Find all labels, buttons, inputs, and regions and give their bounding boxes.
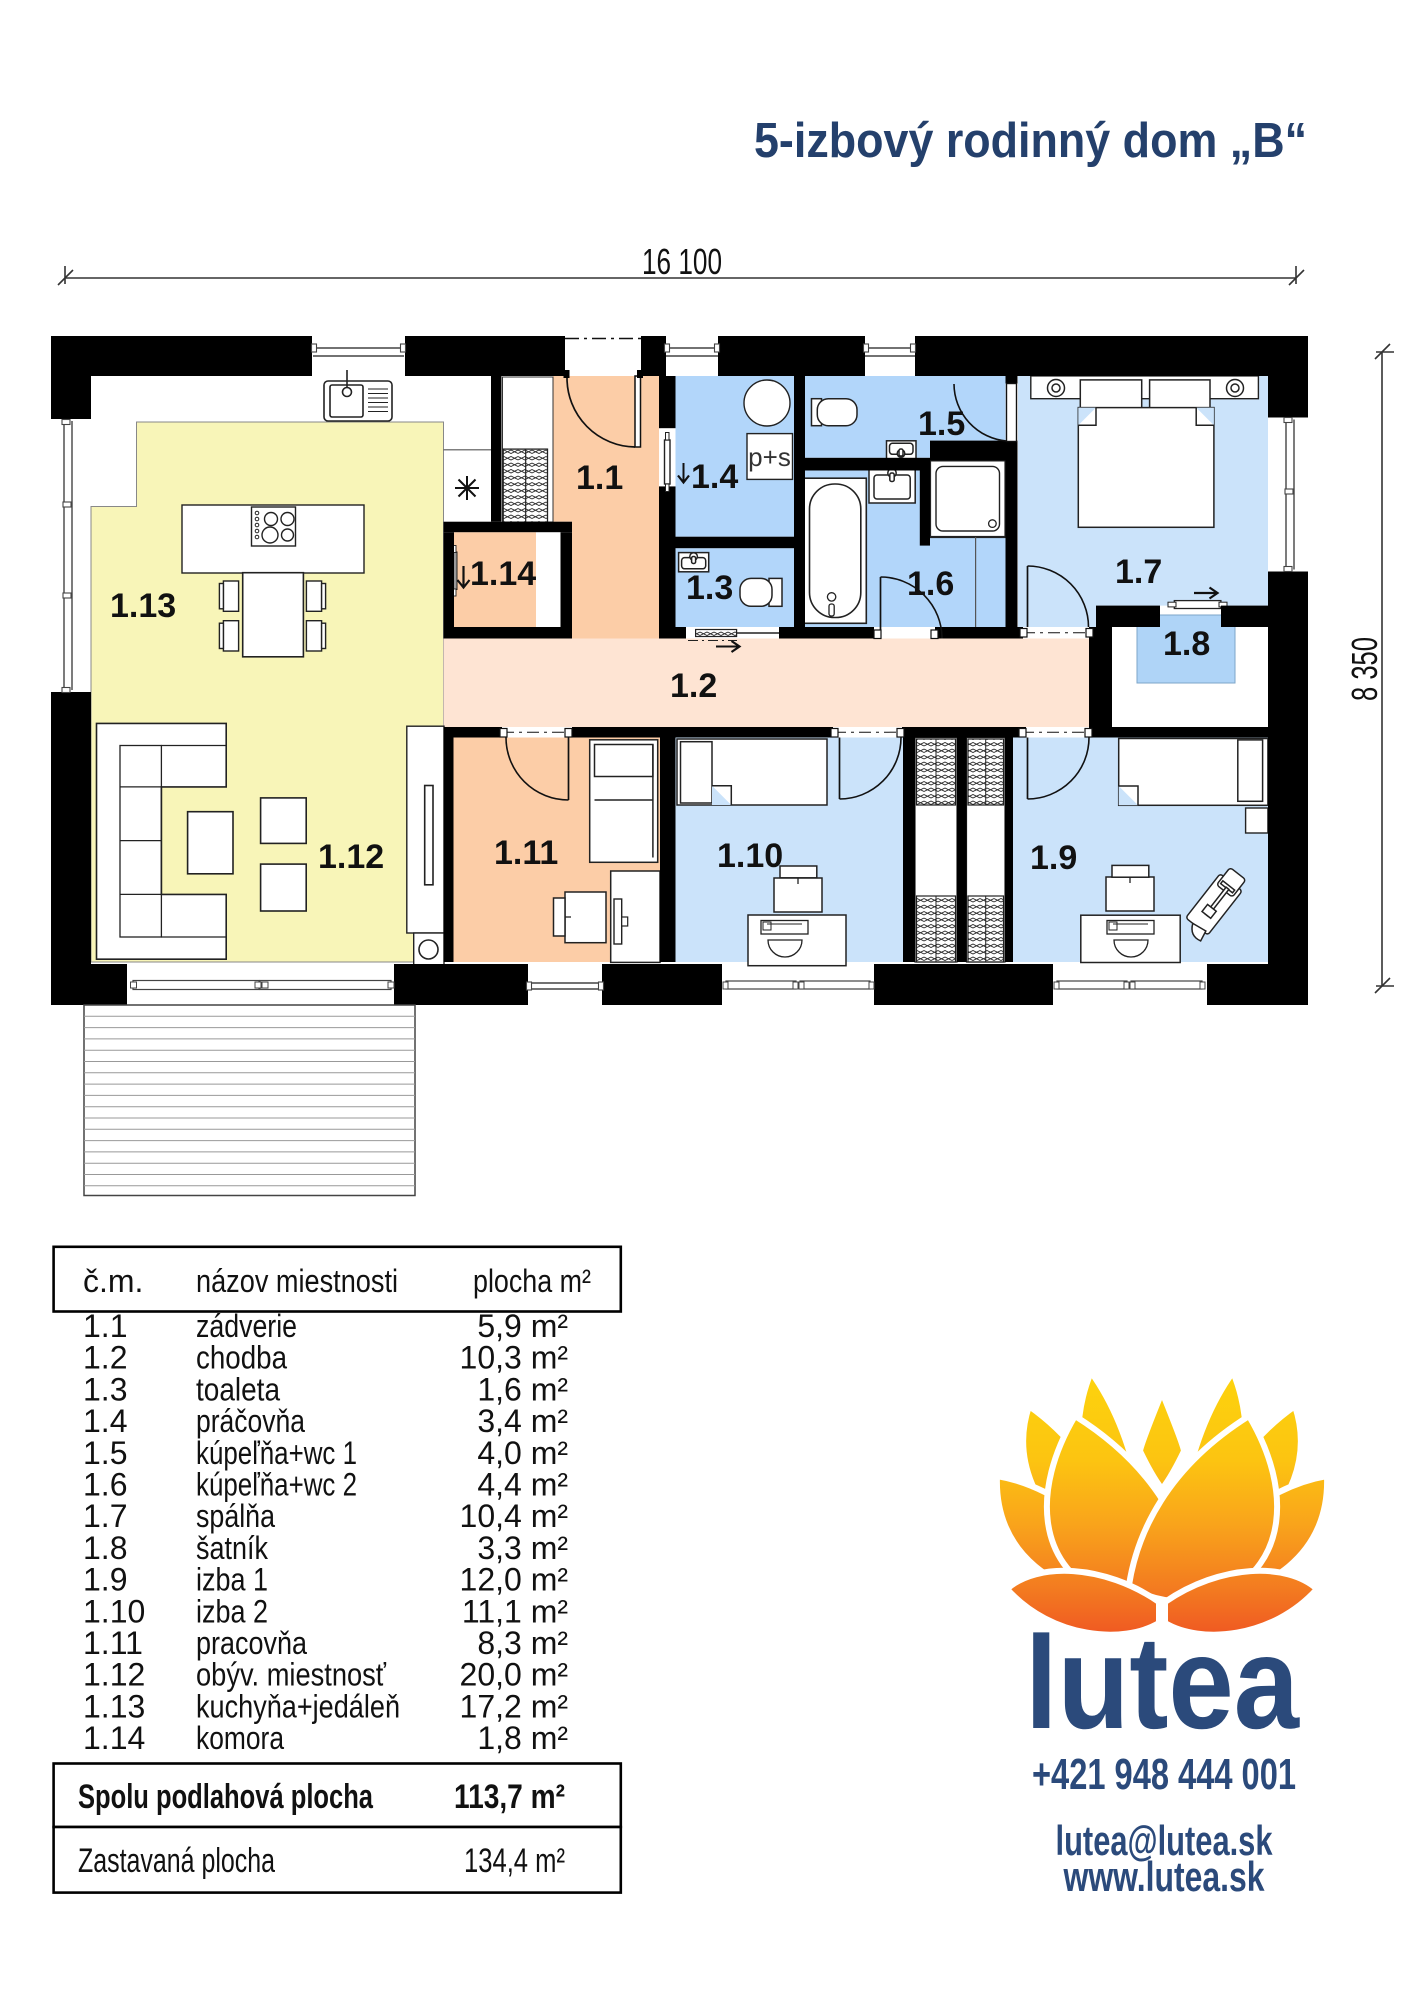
svg-text:17,2 m²: 17,2 m² (460, 1688, 569, 1724)
svg-text:1.4: 1.4 (83, 1403, 127, 1439)
svg-text:č.m.: č.m. (83, 1263, 143, 1299)
svg-text:20,0 m²: 20,0 m² (460, 1657, 569, 1693)
svg-text:pracovňa: pracovňa (196, 1625, 307, 1661)
svg-text:šatník: šatník (196, 1530, 269, 1566)
svg-text:izba 1: izba 1 (196, 1562, 268, 1598)
svg-text:1.7: 1.7 (1115, 553, 1162, 591)
svg-text:1.12: 1.12 (83, 1657, 145, 1693)
svg-text:1.13: 1.13 (110, 587, 176, 625)
svg-text:3,4 m²: 3,4 m² (477, 1403, 568, 1439)
svg-text:1.1: 1.1 (576, 459, 623, 497)
svg-text:plocha m²: plocha m² (473, 1263, 591, 1299)
svg-text:1.9: 1.9 (83, 1562, 127, 1598)
svg-text:1.14: 1.14 (83, 1720, 145, 1756)
svg-text:1.2: 1.2 (83, 1340, 127, 1376)
svg-text:3,3 m²: 3,3 m² (477, 1530, 568, 1566)
svg-text:1.11: 1.11 (494, 834, 558, 872)
svg-text:www.lutea.sk: www.lutea.sk (1063, 1853, 1265, 1900)
svg-text:1.9: 1.9 (1030, 839, 1077, 877)
svg-text:Zastavaná plocha: Zastavaná plocha (78, 1842, 275, 1880)
svg-text:4,4 m²: 4,4 m² (477, 1467, 568, 1503)
svg-text:komora: komora (196, 1720, 284, 1756)
svg-text:izba 2: izba 2 (196, 1593, 268, 1629)
svg-text:1,6 m²: 1,6 m² (477, 1371, 568, 1407)
svg-text:1,8 m²: 1,8 m² (477, 1720, 568, 1756)
svg-text:1.7: 1.7 (83, 1498, 127, 1534)
svg-text:1.11: 1.11 (83, 1625, 143, 1661)
svg-text:8,3 m²: 8,3 m² (477, 1625, 568, 1661)
svg-text:4,0 m²: 4,0 m² (477, 1435, 568, 1471)
svg-text:toaleta: toaleta (196, 1371, 280, 1407)
svg-text:1.6: 1.6 (83, 1467, 127, 1503)
svg-text:1.6: 1.6 (907, 565, 954, 603)
svg-text:kuchyňa+jedáleň: kuchyňa+jedáleň (196, 1688, 400, 1724)
svg-text:1.14: 1.14 (470, 555, 536, 593)
svg-text:1.3: 1.3 (686, 569, 733, 607)
svg-text:chodba: chodba (196, 1340, 287, 1376)
svg-text:1.8: 1.8 (83, 1530, 127, 1566)
svg-text:1.8: 1.8 (1163, 625, 1210, 663)
svg-text:zádverie: zádverie (196, 1308, 297, 1344)
svg-text:spálňa: spálňa (196, 1498, 275, 1534)
svg-text:1.12: 1.12 (318, 838, 384, 876)
svg-text:1.13: 1.13 (83, 1688, 145, 1724)
svg-text:12,0 m²: 12,0 m² (460, 1562, 569, 1598)
svg-text:kúpeľňa+wc 2: kúpeľňa+wc 2 (196, 1467, 357, 1503)
svg-text:10,4 m²: 10,4 m² (460, 1498, 569, 1534)
svg-text:1.5: 1.5 (83, 1435, 127, 1471)
svg-text:1.5: 1.5 (918, 405, 965, 443)
svg-text:113,7 m²: 113,7 m² (454, 1778, 565, 1816)
svg-text:kúpeľňa+wc 1: kúpeľňa+wc 1 (196, 1435, 357, 1471)
svg-text:Spolu podlahová plocha: Spolu podlahová plocha (78, 1778, 374, 1816)
svg-text:1.2: 1.2 (670, 667, 717, 705)
svg-text:8 350: 8 350 (1344, 637, 1385, 701)
svg-text:5-izbový rodinný dom „B“: 5-izbový rodinný dom „B“ (754, 114, 1307, 168)
svg-text:názov miestnosti: názov miestnosti (196, 1263, 398, 1299)
svg-text:16 100: 16 100 (642, 241, 722, 282)
svg-text:+421 948 444 001: +421 948 444 001 (1032, 1750, 1296, 1799)
svg-text:1.3: 1.3 (83, 1371, 127, 1407)
svg-text:1.10: 1.10 (717, 837, 783, 875)
svg-text:11,1 m²: 11,1 m² (462, 1593, 568, 1629)
svg-text:10,3 m²: 10,3 m² (460, 1340, 569, 1376)
svg-text:1.4: 1.4 (691, 458, 738, 496)
svg-text:5,9 m²: 5,9 m² (477, 1308, 568, 1344)
svg-text:1.1: 1.1 (83, 1308, 127, 1344)
svg-text:lutea: lutea (1025, 1609, 1300, 1756)
svg-text:práčovňa: práčovňa (196, 1403, 305, 1439)
svg-text:134,4 m²: 134,4 m² (464, 1842, 565, 1880)
svg-text:obýv. miestnosť: obýv. miestnosť (196, 1657, 387, 1693)
svg-text:p+s: p+s (748, 442, 791, 472)
svg-text:1.10: 1.10 (83, 1593, 145, 1629)
